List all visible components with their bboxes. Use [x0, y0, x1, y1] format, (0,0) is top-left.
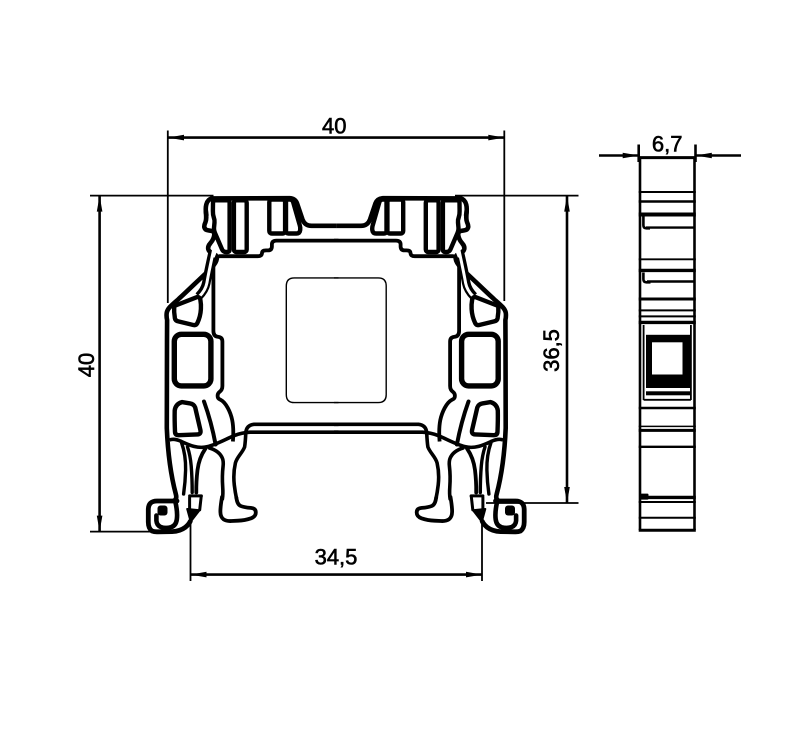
svg-text:40: 40	[74, 353, 99, 377]
svg-text:6,7: 6,7	[652, 131, 683, 156]
svg-text:40: 40	[322, 113, 346, 138]
svg-text:34,5: 34,5	[315, 545, 358, 570]
svg-text:36,5: 36,5	[539, 329, 564, 372]
